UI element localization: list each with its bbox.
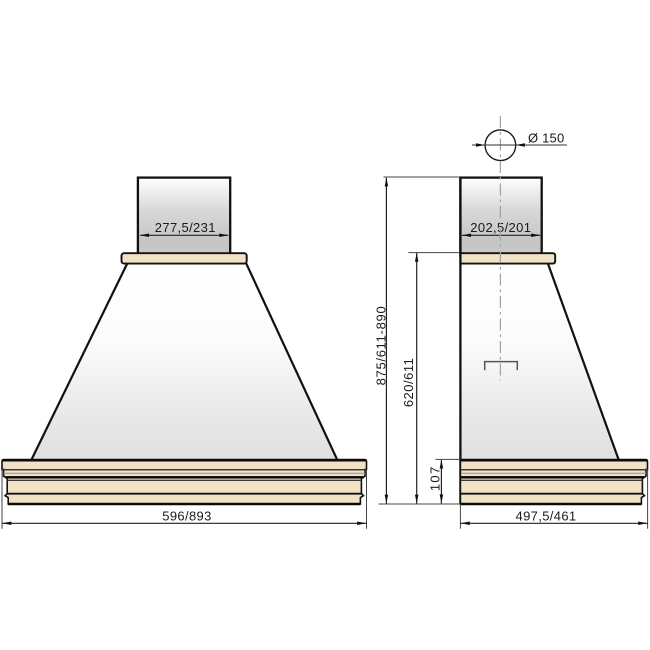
svg-text:277,5/231: 277,5/231 (155, 220, 216, 235)
svg-text:Ø 150: Ø 150 (528, 131, 564, 146)
svg-text:107: 107 (427, 466, 442, 492)
svg-text:875/611-890: 875/611-890 (373, 306, 388, 386)
svg-text:620/611: 620/611 (401, 358, 416, 408)
svg-text:497,5/461: 497,5/461 (516, 508, 577, 523)
svg-text:596/893: 596/893 (162, 508, 211, 523)
